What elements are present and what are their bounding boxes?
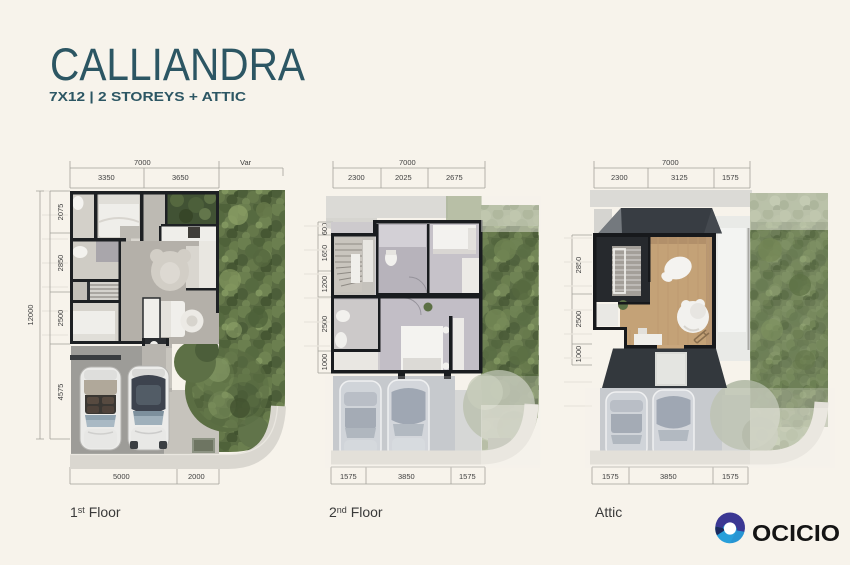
svg-text:7000: 7000 (399, 158, 416, 167)
svg-text:2500: 2500 (56, 310, 65, 327)
svg-text:2850: 2850 (56, 255, 65, 272)
svg-text:OCICIO: OCICIO (752, 520, 840, 546)
svg-text:3350: 3350 (98, 173, 115, 182)
svg-text:4575: 4575 (56, 384, 65, 401)
svg-text:Attic: Attic (595, 504, 622, 520)
svg-text:1575: 1575 (722, 472, 739, 481)
svg-text:2675: 2675 (446, 173, 463, 182)
svg-text:1575: 1575 (722, 173, 739, 182)
svg-text:1000: 1000 (320, 354, 329, 371)
svg-text:2025: 2025 (395, 173, 412, 182)
svg-text:2500: 2500 (574, 311, 583, 328)
svg-text:1650: 1650 (320, 245, 329, 262)
svg-text:CALLIANDRA: CALLIANDRA (50, 39, 305, 90)
svg-text:3850: 3850 (660, 472, 677, 481)
svg-text:1575: 1575 (602, 472, 619, 481)
svg-text:1st Floor: 1st Floor (70, 504, 121, 520)
svg-text:2075: 2075 (56, 204, 65, 221)
svg-text:2850: 2850 (574, 257, 583, 274)
svg-text:2300: 2300 (348, 173, 365, 182)
svg-text:Var: Var (240, 158, 252, 167)
svg-text:7X12 | 2 STOREYS + ATTIC: 7X12 | 2 STOREYS + ATTIC (49, 89, 247, 104)
svg-text:5000: 5000 (113, 472, 130, 481)
svg-text:3125: 3125 (671, 173, 688, 182)
svg-text:3850: 3850 (398, 472, 415, 481)
svg-text:1575: 1575 (459, 472, 476, 481)
svg-text:1575: 1575 (340, 472, 357, 481)
svg-text:12000: 12000 (26, 305, 35, 326)
svg-text:2500: 2500 (320, 316, 329, 333)
svg-text:1200: 1200 (320, 276, 329, 293)
svg-text:7000: 7000 (662, 158, 679, 167)
svg-text:7000: 7000 (134, 158, 151, 167)
svg-text:2000: 2000 (188, 472, 205, 481)
svg-text:2300: 2300 (611, 173, 628, 182)
svg-text:3650: 3650 (172, 173, 189, 182)
svg-text:1000: 1000 (574, 346, 583, 363)
